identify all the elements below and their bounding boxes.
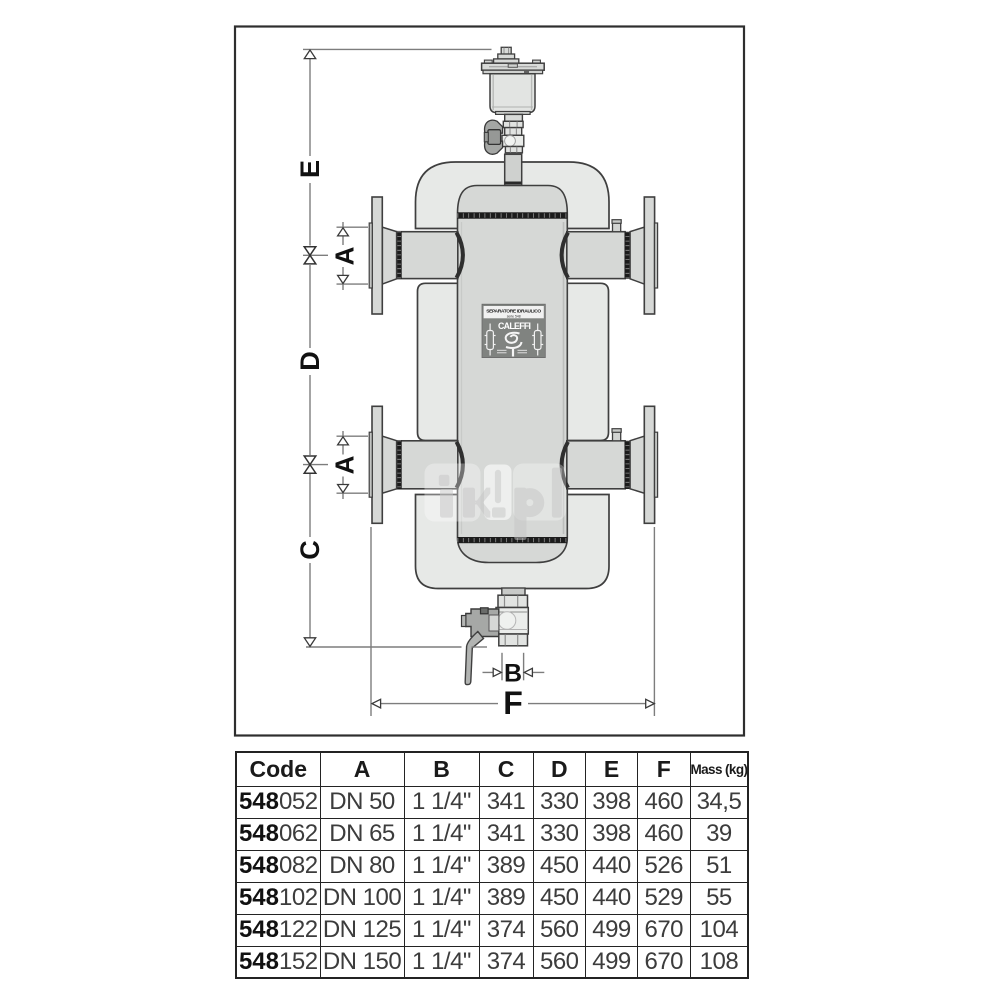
svg-text:B: B — [504, 659, 522, 687]
svg-text:E: E — [295, 160, 325, 178]
svg-text:serie 548: serie 548 — [507, 314, 521, 318]
svg-text:C: C — [295, 540, 325, 560]
svg-text:D: D — [295, 351, 325, 371]
svg-text:F: F — [503, 685, 523, 721]
svg-text:A: A — [330, 246, 360, 265]
svg-text:SEPARATORE IDRAULICO: SEPARATORE IDRAULICO — [486, 308, 541, 314]
svg-text:A: A — [330, 455, 360, 474]
svg-text:CALEFFI: CALEFFI — [498, 321, 531, 331]
